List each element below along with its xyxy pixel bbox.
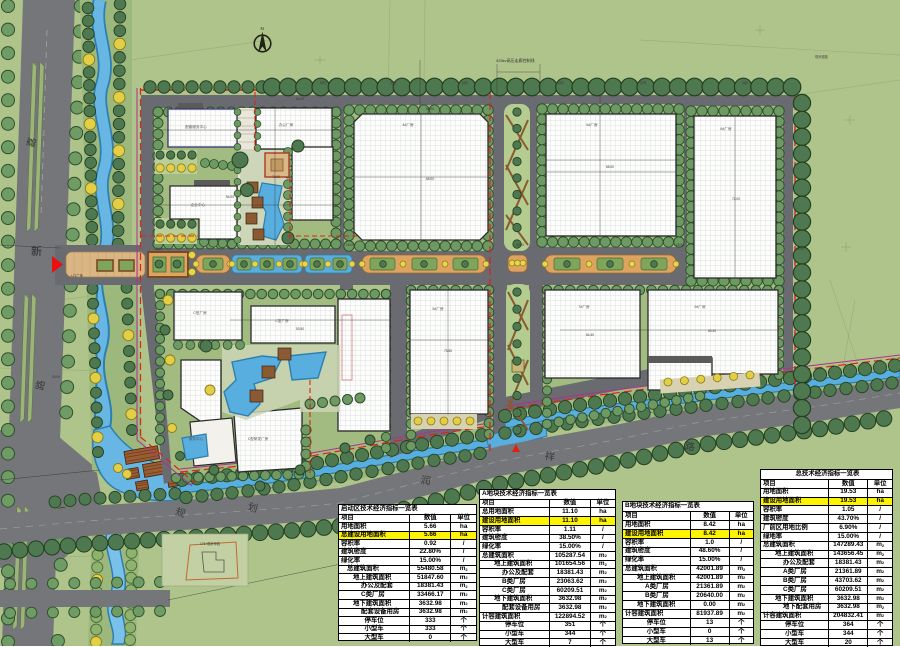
svg-text:入口广场: 入口广场 xyxy=(70,273,83,278)
svg-text:企业中心: 企业中心 xyxy=(191,202,206,207)
svg-text:60.40: 60.40 xyxy=(708,329,716,333)
svg-text:176+现状甲线: 176+现状甲线 xyxy=(200,541,221,546)
svg-text:73.50: 73.50 xyxy=(444,349,452,353)
svg-text:71.00: 71.00 xyxy=(272,175,280,179)
svg-text:65.00: 65.00 xyxy=(426,177,434,181)
svg-text:54.00: 54.00 xyxy=(226,195,234,199)
svg-text:325kv高压走廊控制线: 325kv高压走廊控制线 xyxy=(496,57,535,63)
svg-text:9#厂房: 9#厂房 xyxy=(694,304,706,309)
svg-text:5#厂房: 5#厂房 xyxy=(432,306,444,311)
svg-text:办公厂房: 办公厂房 xyxy=(279,122,294,127)
svg-text:C型研发厂房: C型研发厂房 xyxy=(248,436,269,441)
svg-text:72.00: 72.00 xyxy=(732,197,740,201)
svg-text:15.00: 15.00 xyxy=(676,243,684,247)
svg-text:C型厂房: C型厂房 xyxy=(275,318,289,323)
svg-text:N: N xyxy=(261,26,264,31)
svg-text:4#厂房: 4#厂房 xyxy=(402,122,414,127)
svg-text:C型厂房: C型厂房 xyxy=(193,310,207,315)
svg-text:65.00: 65.00 xyxy=(606,165,614,169)
svg-text:绿化: 绿化 xyxy=(462,80,469,85)
svg-text:绿化: 绿化 xyxy=(742,80,749,85)
svg-text:绿化: 绿化 xyxy=(320,80,327,85)
svg-text:现状道路: 现状道路 xyxy=(815,54,829,59)
svg-text:景观: 景观 xyxy=(390,80,397,85)
svg-text:8#厂房: 8#厂房 xyxy=(720,126,732,131)
svg-text:64.40: 64.40 xyxy=(586,333,594,337)
svg-text:服务中心: 服务中心 xyxy=(189,436,204,441)
svg-text:24.00: 24.00 xyxy=(796,247,804,251)
svg-text:54.00: 54.00 xyxy=(296,97,304,101)
svg-text:7#厂房: 7#厂房 xyxy=(578,304,590,309)
svg-text:65.00: 65.00 xyxy=(426,107,434,111)
svg-text:绿化: 绿化 xyxy=(558,80,565,85)
svg-text:50.00: 50.00 xyxy=(52,375,60,379)
svg-text:15.00: 15.00 xyxy=(346,243,354,247)
svg-text:新: 新 xyxy=(31,244,42,258)
svg-text:20.00: 20.00 xyxy=(516,243,524,247)
svg-text:53.50: 53.50 xyxy=(296,327,304,331)
svg-text:24.00: 24.00 xyxy=(156,247,164,251)
svg-text:景观: 景观 xyxy=(640,80,647,85)
svg-text:配套服务中心: 配套服务中心 xyxy=(185,124,207,129)
svg-text:6#厂房: 6#厂房 xyxy=(586,122,598,127)
